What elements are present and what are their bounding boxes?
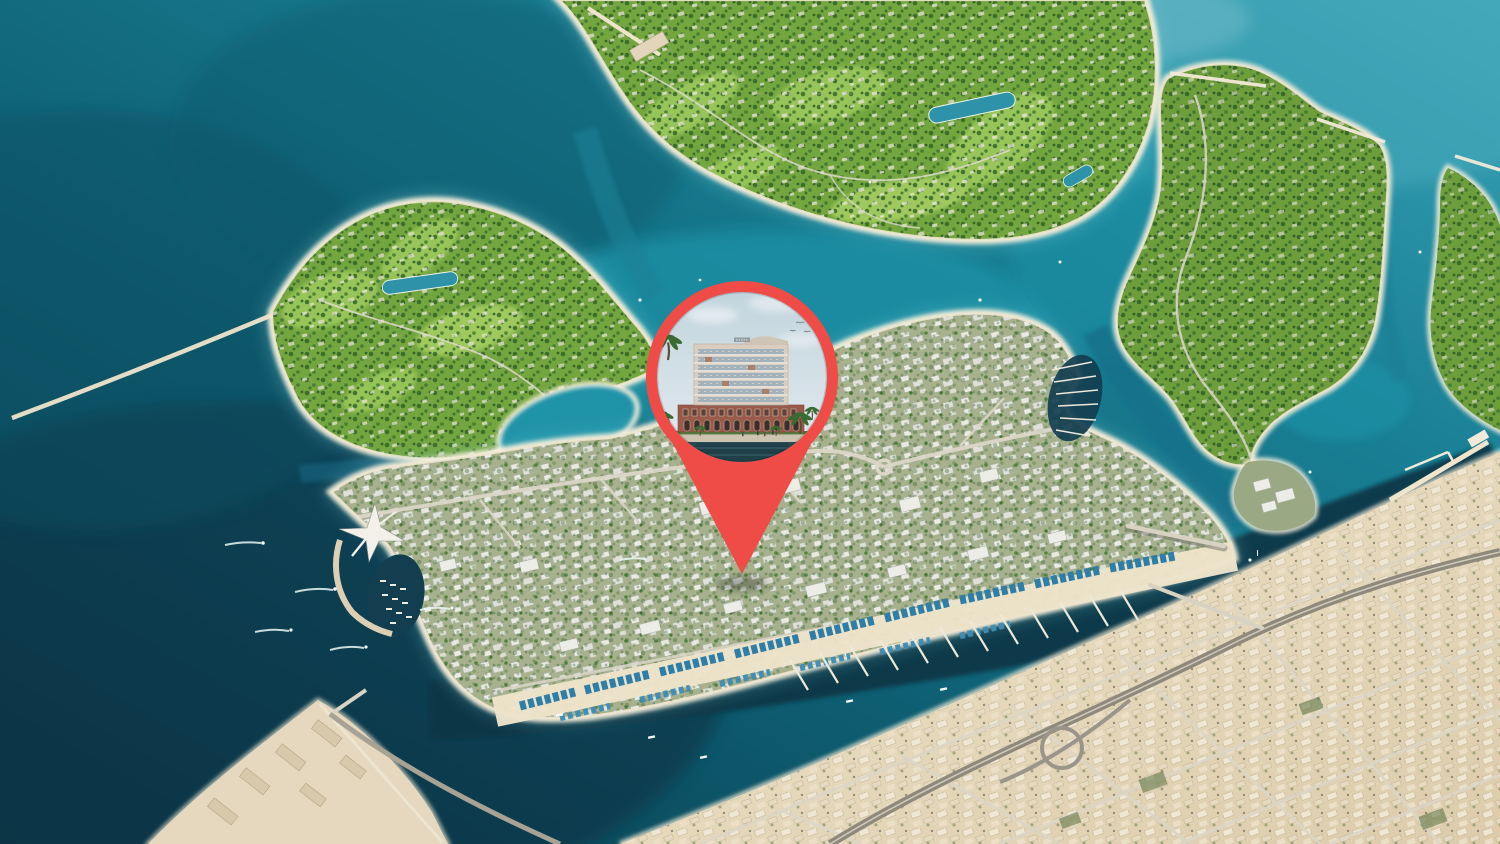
pin-shadow — [716, 577, 768, 591]
scene-map — [0, 0, 1500, 844]
aerial-map-screenshot — [0, 0, 1500, 844]
